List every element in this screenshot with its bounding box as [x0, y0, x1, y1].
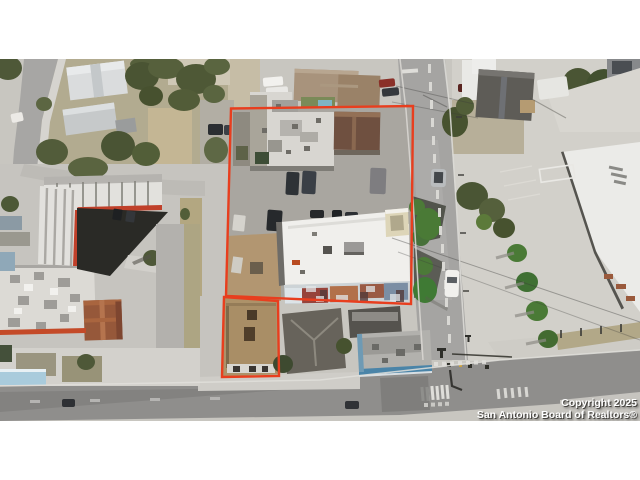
svg-text:Copyright 2025: Copyright 2025 [561, 397, 637, 409]
svg-text:San Antonio Board of Realtors®: San Antonio Board of Realtors® [477, 409, 637, 421]
